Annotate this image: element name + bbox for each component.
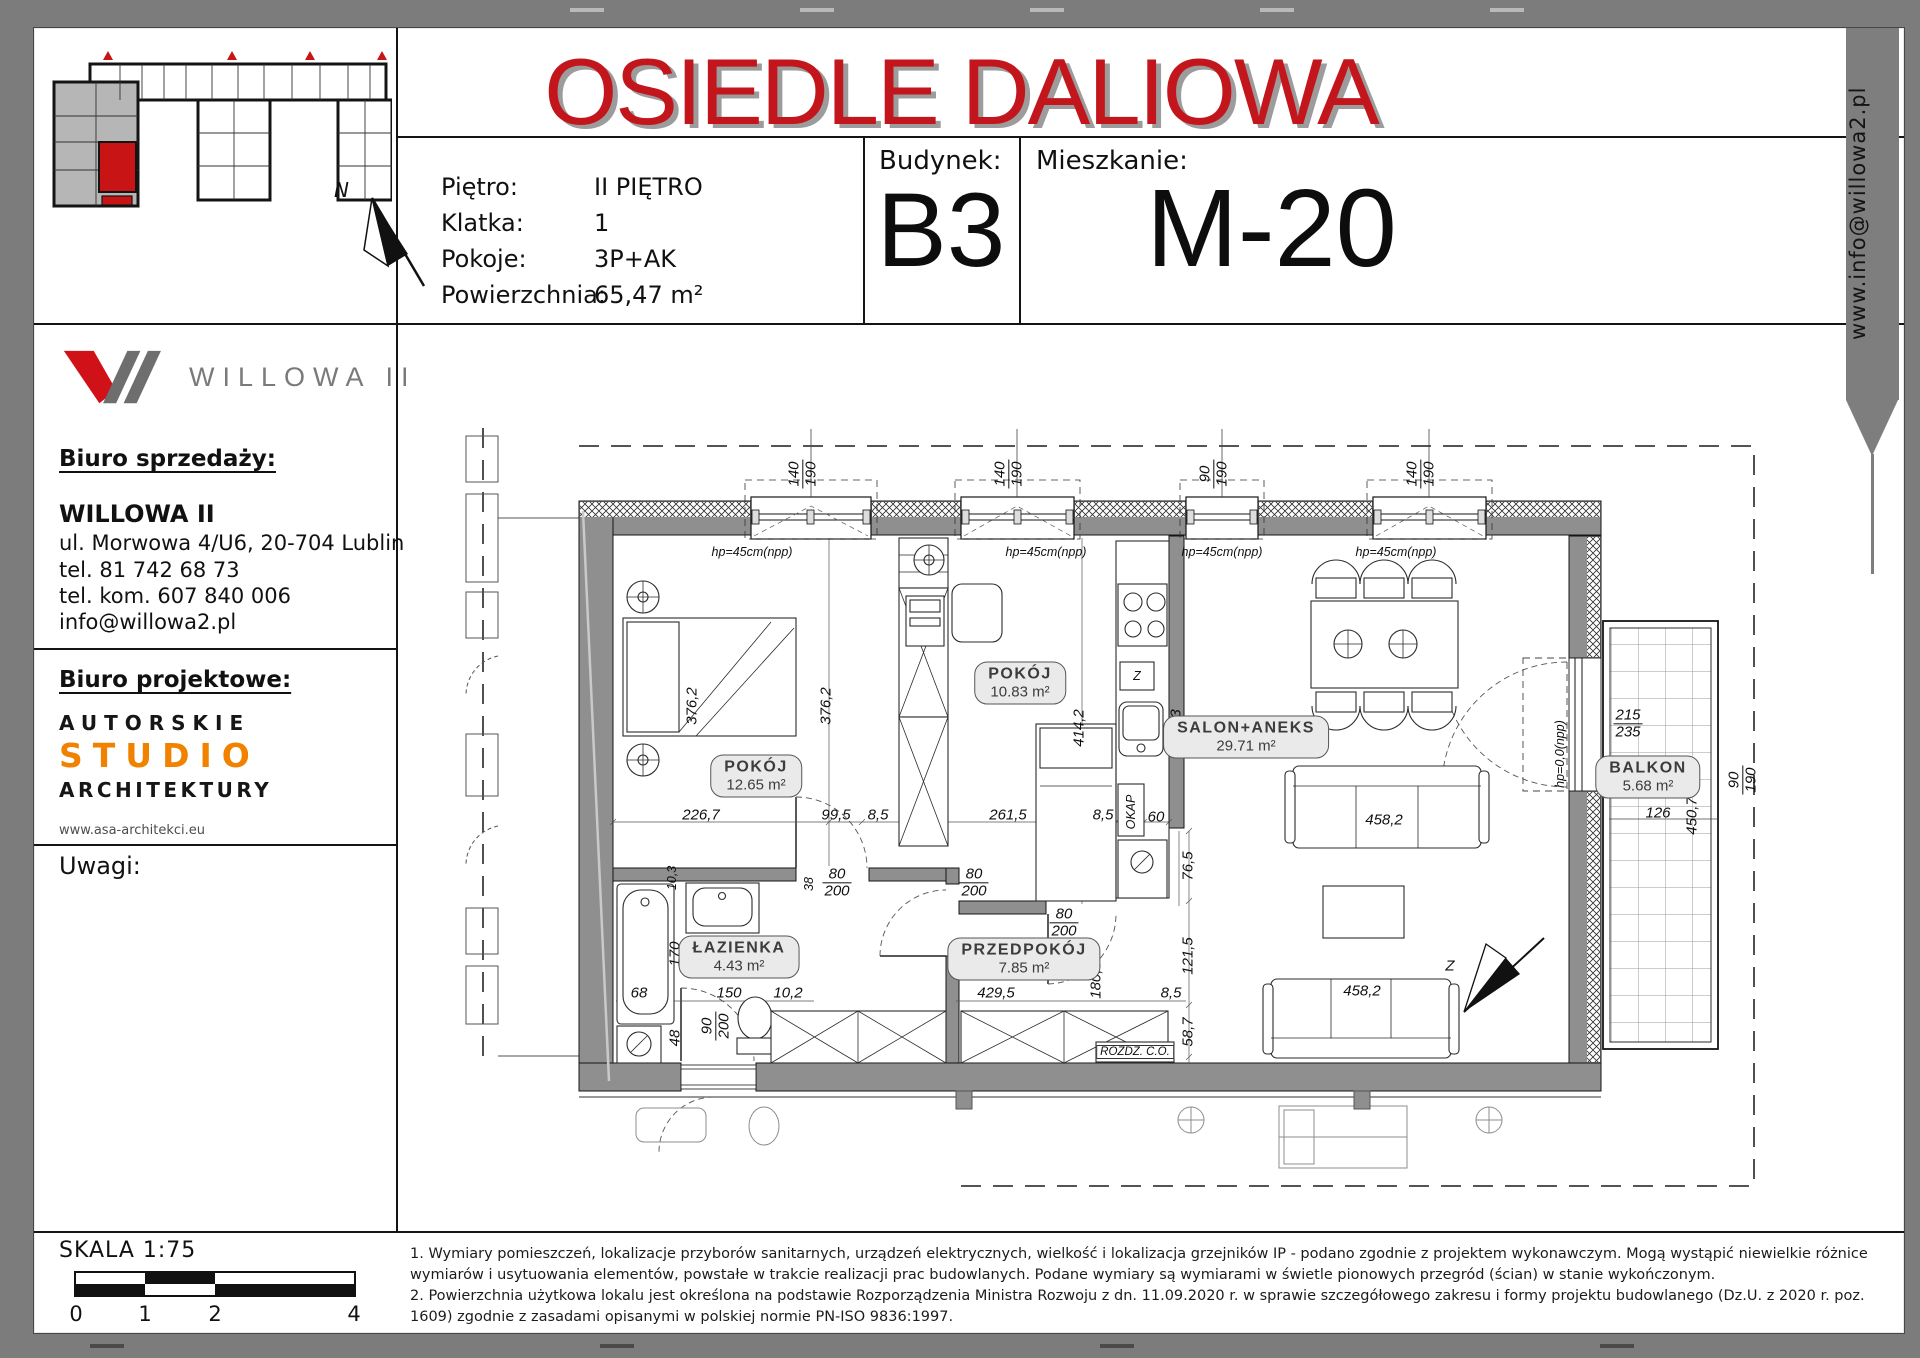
neighbour-below xyxy=(579,1091,1601,1168)
dimension-label: 414,2 xyxy=(1071,709,1088,747)
frame-tick xyxy=(1490,8,1524,12)
dimension-label: 80200 xyxy=(822,866,851,899)
divider-line xyxy=(34,1231,1904,1233)
frame-tick xyxy=(600,1344,634,1348)
dimension-label: 140190 xyxy=(992,459,1025,488)
dimension-label: 10,2 xyxy=(773,985,802,1002)
dimension-label: 60 xyxy=(1148,809,1165,826)
balcony xyxy=(1603,621,1718,1049)
dimension-label: hp=45cm(npp) xyxy=(712,545,793,559)
dimension-label: 226,7 xyxy=(682,807,720,824)
room-label: POKÓJ12.65 m² xyxy=(710,755,802,798)
notes-heading: Uwagi: xyxy=(59,852,141,880)
room-label: ŁAZIENKA4.43 m² xyxy=(679,936,800,979)
dimension-label: 80200 xyxy=(959,866,988,899)
design-office-line2: STUDIO xyxy=(59,736,260,775)
compass-letter: N xyxy=(334,178,349,202)
dimension-label: Z xyxy=(1445,958,1454,975)
frame-tick xyxy=(1600,1344,1634,1348)
dimension-label: hp=0,0(npp) xyxy=(1553,720,1567,788)
frame-tick xyxy=(1030,8,1064,12)
plan-sheet: N WILLOWA II Biuro sprzedaży: WILLOWA II… xyxy=(33,27,1905,1334)
dimension-label: 58,7 xyxy=(1180,1017,1197,1046)
dimension-label: 8,5 xyxy=(1093,807,1114,824)
dimension-label: 38 xyxy=(802,877,816,891)
dimension-label: 376,2 xyxy=(684,687,701,725)
footer-note-1: 1. Wymiary pomieszczeń, lokalizacje przy… xyxy=(410,1244,1888,1286)
design-office-line3: ARCHITEKTURY xyxy=(59,778,272,802)
dimension-label: 215235 xyxy=(1613,707,1642,740)
sales-office-address: ul. Morwowa 4/U6, 20-704 Lublin xyxy=(59,531,404,555)
dimension-label: 450,7 xyxy=(1684,797,1701,835)
sales-office-email: info@willowa2.pl xyxy=(59,610,236,634)
dimension-label: 140190 xyxy=(1404,459,1437,488)
scale-label: SKALA 1:75 xyxy=(59,1238,196,1263)
dimension-label: hp=45cm(npp) xyxy=(1182,545,1263,559)
dimension-label: 429,5 xyxy=(977,985,1015,1002)
field-value: 1 xyxy=(594,209,609,237)
floor-plan: POKÓJ12.65 m²POKÓJ10.83 m²SALON+ANEKS29.… xyxy=(396,266,1889,1229)
dimension-label: 90190 xyxy=(1197,459,1230,488)
dimension-label: 10,3 xyxy=(665,866,679,890)
field-label: Piętro: xyxy=(441,173,518,201)
room-label: BALKON5.68 m² xyxy=(1595,756,1700,799)
dimension-label: 458,2 xyxy=(1365,812,1403,829)
design-office-website: www.asa-architekci.eu xyxy=(59,823,205,838)
dimension-label: 261,5 xyxy=(989,807,1027,824)
divider-line xyxy=(34,844,396,846)
design-office-heading: Biuro projektowe: xyxy=(59,667,291,693)
dimension-label: hp=45cm(npp) xyxy=(1356,545,1437,559)
frame-tick xyxy=(1260,8,1294,12)
dimension-label: 376,2 xyxy=(818,687,835,725)
dimension-label: 121,5 xyxy=(1180,937,1197,975)
dimension-label: 48 xyxy=(667,1030,684,1047)
frame-tick xyxy=(1100,1344,1134,1348)
dimension-label: hp=45cm(npp) xyxy=(1006,545,1087,559)
divider-line xyxy=(34,648,396,650)
field-label: Klatka: xyxy=(441,209,524,237)
dimension-label: 68 xyxy=(631,985,648,1002)
contact-ribbon: www.info@willowa2.pl xyxy=(1846,28,1899,400)
floor-plan-svg xyxy=(396,266,1889,1229)
ribbon-stem xyxy=(1871,454,1874,574)
sales-office-mobile: tel. kom. 607 840 006 xyxy=(59,584,291,608)
plan-north-arrow-icon xyxy=(1464,938,1544,1012)
willowa-logo-icon xyxy=(62,344,174,412)
dimension-label: 458,2 xyxy=(1343,983,1381,1000)
dimension-label: Z xyxy=(1133,669,1141,683)
footer-notes: 1. Wymiary pomieszczeń, lokalizacje przy… xyxy=(410,1244,1888,1328)
dimension-label: OKAP xyxy=(1124,795,1138,830)
dimension-label: 126 xyxy=(1645,805,1670,822)
dimension-label: 8,5 xyxy=(868,807,889,824)
dimension-label: 8,5 xyxy=(1161,985,1182,1002)
frame-tick xyxy=(570,8,604,12)
dimension-label: 99,5 xyxy=(821,807,850,824)
ribbon-tail xyxy=(1846,400,1898,456)
dimension-label: 90190 xyxy=(1726,765,1759,794)
room-label: POKÓJ10.83 m² xyxy=(974,662,1066,705)
logo-wordmark: WILLOWA II xyxy=(189,362,417,393)
frame-tick xyxy=(800,8,834,12)
sales-office-phone: tel. 81 742 68 73 xyxy=(59,558,240,582)
ribbon-text: www.info@willowa2.pl xyxy=(1846,38,1899,388)
scale-tick: 4 xyxy=(347,1302,360,1326)
design-office-line1: AUTORSKIE xyxy=(59,711,250,735)
scale-tick: 0 xyxy=(69,1302,82,1326)
footer-note-2: 2. Powierzchnia użytkowa lokalu jest okr… xyxy=(410,1286,1888,1328)
sales-office-company: WILLOWA II xyxy=(59,500,215,528)
dimension-label: 140190 xyxy=(786,459,819,488)
room-label: SALON+ANEKS29.71 m² xyxy=(1163,716,1329,759)
scale-bar xyxy=(74,1271,356,1297)
dimension-label: 80200 xyxy=(1049,906,1078,939)
dimension-label: ROZDZ. C.O. xyxy=(1096,1045,1174,1059)
page-title: OSIEDLE DALIOWA xyxy=(396,38,1526,146)
room-label: PRZEDPOKÓJ7.85 m² xyxy=(947,938,1100,981)
dimension-label: 90200 xyxy=(699,1011,732,1040)
sales-office-heading: Biuro sprzedaży: xyxy=(59,446,276,472)
scale-tick: 2 xyxy=(208,1302,221,1326)
frame-tick xyxy=(90,1344,124,1348)
field-value: II PIĘTRO xyxy=(594,173,703,201)
dimension-label: 150 xyxy=(716,985,741,1002)
scale-tick: 1 xyxy=(138,1302,151,1326)
dimension-label: 76,5 xyxy=(1180,851,1197,880)
